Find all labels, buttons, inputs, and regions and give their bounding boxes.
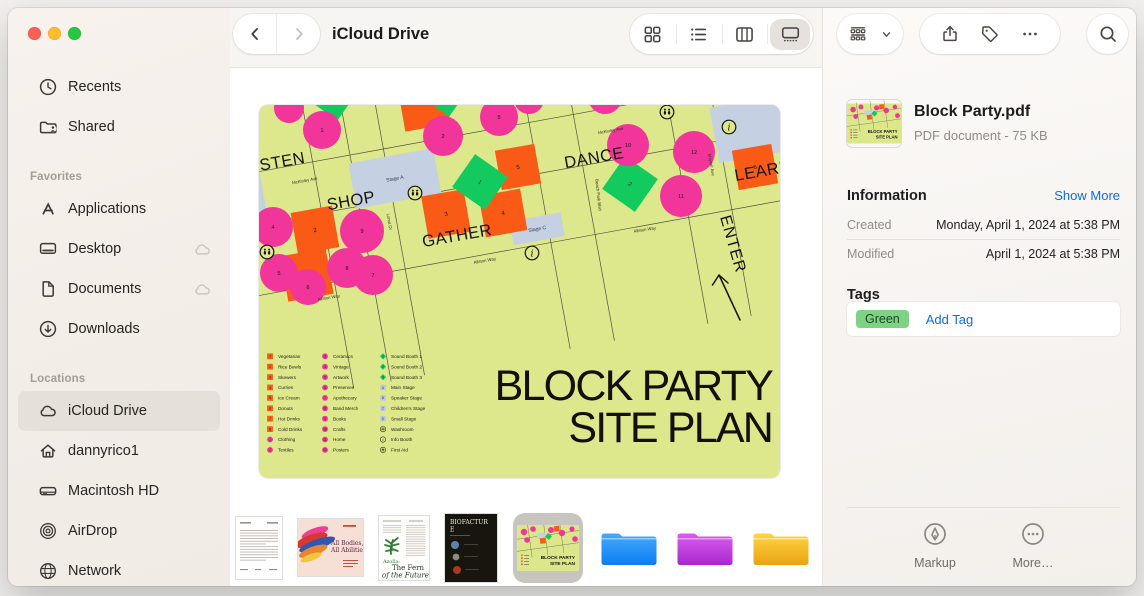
- view-switcher: [630, 14, 813, 54]
- svg-text:Children's Stage: Children's Stage: [391, 406, 426, 411]
- toolbar: iCloud Drive: [230, 8, 822, 68]
- svg-text:Preserves: Preserves: [333, 385, 355, 390]
- svg-text:9: 9: [360, 229, 363, 235]
- info-value: Monday, April 1, 2024 at 5:38 PM: [936, 218, 1120, 232]
- cloud-badge-icon: [193, 240, 212, 259]
- svg-text:Curries: Curries: [278, 385, 294, 390]
- svg-text:10: 10: [323, 427, 327, 431]
- svg-text:1: 1: [269, 355, 271, 359]
- svg-text:BLOCK PARTY: BLOCK PARTY: [541, 555, 576, 561]
- svg-text:10: 10: [625, 143, 631, 149]
- svg-text:5: 5: [324, 375, 326, 379]
- svg-text:8: 8: [345, 266, 348, 272]
- svg-text:Speaker Stage: Speaker Stage: [391, 396, 422, 401]
- sidebar-item-label: Applications: [68, 201, 146, 217]
- svg-text:11: 11: [678, 194, 684, 200]
- info-label: Modified: [847, 247, 894, 261]
- svg-text:BLOCK PARTY: BLOCK PARTY: [495, 362, 773, 410]
- svg-text:7: 7: [269, 417, 271, 421]
- sidebar-item-label: Desktop: [68, 241, 121, 257]
- gallery-item-fern-doc[interactable]: Azolla: The Fern of the Future: [379, 516, 429, 580]
- appstore-icon: [38, 199, 58, 219]
- svg-text:3: 3: [269, 375, 271, 379]
- view-list-button[interactable]: [676, 14, 722, 54]
- toolbar-actions: [920, 14, 1060, 54]
- sidebar-item-label: Downloads: [68, 321, 140, 337]
- svg-text:Info Booth: Info Booth: [391, 437, 413, 442]
- gallery-item-block-party-pdf[interactable]: BLOCK PARTY SITE PLAN: [513, 513, 583, 583]
- clock-icon: [38, 77, 58, 97]
- svg-text:Ice Cream: Ice Cream: [278, 396, 300, 401]
- sidebar-item-downloads[interactable]: Downloads: [18, 309, 220, 349]
- thumbnail-strip: All Bodies, All Abilities Azolla: The Fe…: [230, 505, 822, 586]
- svg-text:4: 4: [271, 225, 274, 231]
- svg-text:2: 2: [382, 365, 384, 369]
- info-label: Created: [847, 218, 891, 232]
- svg-text:of the Future: of the Future: [382, 571, 429, 579]
- svg-text:Sound Booth 1: Sound Booth 1: [391, 354, 422, 359]
- more-actions-button[interactable]: [1020, 24, 1040, 44]
- svg-text:BIOFACTUR: BIOFACTUR: [450, 519, 488, 526]
- display-icon: [38, 239, 58, 259]
- sidebar-section-locations: Locations: [30, 373, 230, 391]
- svg-text:3: 3: [382, 375, 384, 379]
- svg-text:Small Stage: Small Stage: [391, 416, 417, 421]
- svg-text:2: 2: [269, 365, 271, 369]
- more-button[interactable]: More…: [1007, 521, 1059, 570]
- svg-text:6: 6: [269, 407, 271, 411]
- svg-text:8: 8: [269, 427, 271, 431]
- sidebar-item-label: Shared: [68, 119, 115, 135]
- sidebar-item-label: Macintosh HD: [68, 483, 159, 499]
- svg-text:4: 4: [269, 386, 271, 390]
- view-icons-button[interactable]: [630, 14, 676, 54]
- svg-text:All Abilities: All Abilities: [330, 547, 363, 554]
- svg-text:Band Merch: Band Merch: [333, 406, 359, 411]
- svg-text:2: 2: [269, 448, 271, 452]
- sidebar-item-documents[interactable]: Documents: [18, 269, 220, 309]
- share-button[interactable]: [940, 24, 960, 44]
- sidebar-list: RecentsSharedFavoritesApplicationsDeskto…: [8, 8, 230, 586]
- file-name: Block Party.pdf: [914, 103, 1048, 121]
- tags-button[interactable]: [980, 24, 1000, 44]
- svg-text:Vintage: Vintage: [333, 364, 349, 369]
- view-list-icon: [688, 24, 709, 45]
- sidebar-item-recents[interactable]: Recents: [18, 67, 220, 107]
- svg-text:Hot Drinks: Hot Drinks: [278, 416, 301, 421]
- window-controls: [28, 27, 81, 40]
- markup-icon: [922, 521, 948, 547]
- zoom-window-button[interactable]: [68, 27, 81, 40]
- svg-text:First Aid: First Aid: [391, 448, 408, 453]
- gallery-item-poster-doc[interactable]: All Bodies, All Abilities: [298, 519, 363, 576]
- close-window-button[interactable]: [28, 27, 41, 40]
- sidebar: RecentsSharedFavoritesApplicationsDeskto…: [8, 8, 230, 586]
- svg-text:Donuts: Donuts: [278, 406, 294, 411]
- airdrop-icon: [38, 521, 58, 541]
- svg-text:9: 9: [324, 417, 326, 421]
- information-section-header: Information Show More: [847, 188, 1120, 204]
- sidebar-item-shared[interactable]: Shared: [18, 107, 220, 147]
- sidebar-item-applications[interactable]: Applications: [18, 189, 220, 229]
- chevron-left-icon: [246, 25, 264, 43]
- home-icon: [38, 441, 58, 461]
- svg-text:Crafts: Crafts: [333, 427, 346, 432]
- svg-text:Cold Drinks: Cold Drinks: [278, 427, 303, 432]
- sidebar-item-dannyrico1[interactable]: dannyrico1: [18, 431, 220, 471]
- download-icon: [38, 319, 58, 339]
- view-icons-icon: [642, 24, 663, 45]
- svg-text:4: 4: [324, 365, 326, 369]
- svg-text:5: 5: [497, 115, 500, 121]
- minimize-window-button[interactable]: [48, 27, 61, 40]
- show-more-link[interactable]: Show More: [1054, 188, 1120, 203]
- svg-text:Ceramics: Ceramics: [333, 354, 353, 359]
- sidebar-item-label: Recents: [68, 79, 121, 95]
- sidebar-section-favorites: Favorites: [30, 171, 230, 189]
- gallery-item-letter-doc[interactable]: [236, 517, 282, 579]
- sidebar-item-airdrop[interactable]: AirDrop: [18, 511, 220, 551]
- gallery-item-folder-yellow[interactable]: [751, 524, 811, 571]
- group-icon: [848, 24, 868, 44]
- forward-button[interactable]: [276, 14, 320, 54]
- search-icon: [1098, 24, 1118, 44]
- svg-text:Main Stage: Main Stage: [391, 385, 415, 390]
- svg-text:All Bodies,: All Bodies,: [330, 540, 363, 547]
- svg-text:5: 5: [277, 271, 280, 277]
- svg-text:1: 1: [320, 128, 323, 134]
- svg-text:6: 6: [324, 386, 326, 390]
- tags-header: Tags: [847, 287, 880, 303]
- more-circle-icon: [1020, 521, 1046, 547]
- markup-button[interactable]: Markup: [909, 521, 961, 570]
- svg-text:Clothing: Clothing: [278, 437, 296, 442]
- chevron-down-icon: [881, 29, 892, 40]
- gallery-item-folder-purple[interactable]: [675, 524, 735, 571]
- svg-text:Sound Booth 3: Sound Booth 3: [391, 375, 422, 380]
- finder-window: RecentsSharedFavoritesApplicationsDeskto…: [8, 8, 1136, 586]
- file-kind: PDF document - 75 KB: [914, 128, 1048, 143]
- svg-text:Apothecary: Apothecary: [333, 396, 357, 401]
- back-button[interactable]: [233, 14, 276, 54]
- search-button[interactable]: [1087, 14, 1128, 54]
- information-rows: CreatedMonday, April 1, 2024 at 5:38 PMM…: [847, 210, 1120, 268]
- gallery-preview[interactable]: Stage AStage C21345612125101211498567LIS…: [259, 105, 780, 478]
- svg-text:12: 12: [691, 150, 697, 156]
- svg-text:i: i: [727, 122, 730, 133]
- view-gallery-button[interactable]: [767, 14, 813, 54]
- svg-text:3: 3: [324, 355, 326, 359]
- svg-text:12: 12: [323, 448, 327, 452]
- sidebar-item-macintosh-hd[interactable]: Macintosh HD: [18, 471, 220, 511]
- svg-text:i: i: [530, 248, 533, 259]
- file-header: BLOCK PARTY SITE PLAN Block Party.pdf PD…: [847, 100, 1120, 147]
- svg-text:8: 8: [324, 407, 326, 411]
- information-header: Information: [847, 188, 927, 204]
- sidebar-item-label: dannyrico1: [68, 443, 139, 459]
- svg-text:11: 11: [323, 438, 327, 442]
- svg-text:Sound Booth 2: Sound Booth 2: [391, 364, 422, 369]
- info-value: April 1, 2024 at 5:38 PM: [986, 247, 1120, 261]
- gallery-item-biofacture-doc[interactable]: BIOFACTUR E: [445, 514, 497, 582]
- svg-text:BLOCK PARTY: BLOCK PARTY: [868, 129, 898, 134]
- tags-box[interactable]: Green Add Tag: [847, 302, 1120, 336]
- svg-text:Artwork: Artwork: [333, 375, 350, 380]
- view-columns-icon: [734, 24, 755, 45]
- svg-text:E: E: [450, 526, 454, 533]
- sidebar-item-label: Network: [68, 563, 121, 579]
- svg-text:Books: Books: [333, 416, 347, 421]
- shared-folder-icon: [38, 117, 58, 137]
- svg-text:SITE PLAN: SITE PLAN: [550, 561, 576, 567]
- svg-text:SITE PLAN: SITE PLAN: [876, 134, 898, 139]
- svg-text:6: 6: [306, 285, 309, 291]
- info-row-created: CreatedMonday, April 1, 2024 at 5:38 PM: [847, 210, 1120, 239]
- cloud-badge-icon: [193, 280, 212, 299]
- svg-text:Textiles: Textiles: [278, 448, 294, 453]
- quick-actions: MarkupMore…: [847, 507, 1120, 570]
- window-title: iCloud Drive: [332, 25, 429, 44]
- sidebar-item-desktop[interactable]: Desktop: [18, 229, 220, 269]
- add-tag-link[interactable]: Add Tag: [926, 312, 973, 327]
- svg-text:SITE PLAN: SITE PLAN: [568, 404, 772, 452]
- svg-text:Home: Home: [333, 437, 346, 442]
- svg-text:Vegetarian: Vegetarian: [278, 354, 301, 359]
- group-by-button[interactable]: [837, 14, 903, 54]
- sidebar-item-label: AirDrop: [68, 523, 117, 539]
- tag-green[interactable]: Green: [856, 310, 909, 328]
- sidebar-item-icloud-drive[interactable]: iCloud Drive: [18, 391, 220, 431]
- svg-text:Posters: Posters: [333, 448, 350, 453]
- chevron-right-icon: [290, 25, 308, 43]
- svg-text:1: 1: [382, 355, 384, 359]
- action-label: Markup: [914, 556, 956, 570]
- selected-view-highlight: [770, 19, 810, 50]
- view-gallery-icon: [780, 24, 801, 45]
- sidebar-item-network[interactable]: Network: [18, 551, 220, 586]
- svg-text:1: 1: [269, 438, 271, 442]
- sidebar-item-label: iCloud Drive: [68, 403, 147, 419]
- navigation-buttons: [233, 14, 320, 54]
- svg-text:5: 5: [269, 396, 271, 400]
- svg-text:7: 7: [324, 396, 326, 400]
- main-content: iCloud Drive Stage AStage C2134561212510…: [230, 8, 822, 586]
- action-label: More…: [1013, 556, 1054, 570]
- info-row-modified: ModifiedApril 1, 2024 at 5:38 PM: [847, 239, 1120, 268]
- harddrive-icon: [38, 481, 58, 501]
- site-plan-map: Stage AStage C21345612125101211498567LIS…: [259, 105, 780, 478]
- globe-icon: [38, 561, 58, 581]
- preview-pane: BLOCK PARTY SITE PLAN Block Party.pdf PD…: [822, 8, 1136, 586]
- cloud-icon: [38, 401, 58, 421]
- sidebar-item-label: Documents: [68, 281, 141, 297]
- gallery-item-folder-blue[interactable]: [599, 524, 659, 571]
- svg-text:7: 7: [371, 273, 374, 279]
- svg-text:Washroom: Washroom: [391, 427, 414, 432]
- file-thumbnail[interactable]: BLOCK PARTY SITE PLAN: [847, 100, 901, 147]
- svg-text:Rice Bowls: Rice Bowls: [278, 364, 302, 369]
- svg-text:2: 2: [441, 134, 444, 140]
- view-columns-button[interactable]: [722, 14, 768, 54]
- document-icon: [38, 279, 58, 299]
- svg-text:Skewers: Skewers: [278, 375, 297, 380]
